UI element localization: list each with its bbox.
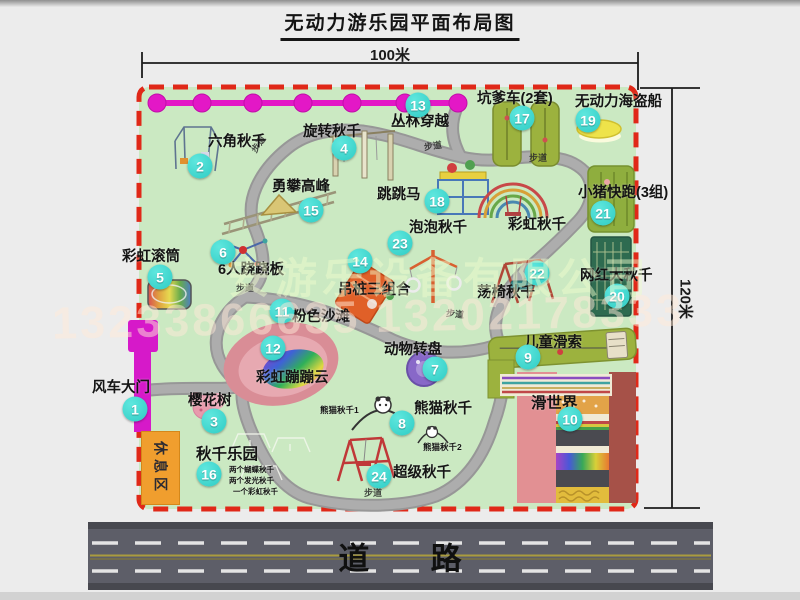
marker-bubble-swing: 23 <box>388 231 413 256</box>
rest-area-zone: 休息区 <box>141 431 180 505</box>
width-dimension-label: 100米 <box>370 44 410 65</box>
marker-kids-zipline: 9 <box>516 345 541 370</box>
marker-six-seesaw: 6 <box>211 240 236 265</box>
label-swing-paradise: 秋千乐园 <box>196 447 258 463</box>
walkway-tag: 步道 <box>364 489 382 498</box>
marker-animal-carousel: 7 <box>423 357 448 382</box>
label-jumping-horse: 跳跳马 <box>377 188 421 203</box>
marker-peak-climbing: 15 <box>299 198 324 223</box>
marker-pink-beach: 11 <box>270 299 295 324</box>
label-rainbow-roller: 彩虹滚筒 <box>122 250 180 265</box>
label-peak-climbing: 勇攀高峰 <box>272 180 330 195</box>
walkway-tag: 步道 <box>236 284 254 293</box>
plan-image: 无动力游乐园平面布局图 100米 120米 休息区 步道 步道 步道 步道 步道… <box>0 0 800 600</box>
label-piggy-run: 小猪快跑(3组) <box>578 186 668 201</box>
marker-hanging-combo: 14 <box>348 249 373 274</box>
label-cherry-tree: 樱花树 <box>188 394 232 409</box>
height-dimension-label: 120米 <box>676 279 697 319</box>
marker-rotating-swing: 4 <box>332 136 357 161</box>
rest-area-label: 休息区 <box>151 441 171 495</box>
label-hexagon-swing: 六角秋千 <box>208 135 266 150</box>
label-panda-swing-2: 熊猫秋千2 <box>423 443 462 452</box>
label-hanging-combo: 吊桩三组合 <box>338 283 411 298</box>
marker-kengdie-car: 17 <box>510 106 535 131</box>
marker-super-swing: 24 <box>367 464 392 489</box>
marker-rainbow-cloud: 12 <box>261 336 286 361</box>
page-title: 无动力游乐园平面布局图 <box>280 8 519 41</box>
label-rainbow-cloud: 彩虹蹦蹦云 <box>256 371 329 386</box>
marker-swing-chair: 22 <box>525 261 550 286</box>
marker-swing-paradise: 16 <box>197 462 222 487</box>
label-super-swing: 超级秋千 <box>393 466 451 481</box>
label-swing-chair: 荡椅秋千 <box>477 286 535 301</box>
label-windmill-gate: 风车大门 <box>92 381 150 396</box>
marker-big-swing: 20 <box>605 284 630 309</box>
marker-cherry-tree: 3 <box>202 409 227 434</box>
marker-panda-swing: 8 <box>390 411 415 436</box>
walkway-tag: 步道 <box>529 154 547 163</box>
walkway-tag: 步道 <box>446 309 465 320</box>
label-panda-swing-1: 熊猫秋千1 <box>320 406 359 415</box>
marker-jungle-traverse: 13 <box>406 93 431 118</box>
label-six-seesaw: 6人跷跷板 <box>218 263 284 278</box>
marker-jumping-horse: 18 <box>425 189 450 214</box>
swing-paradise-note-2: 两个发光秋千 <box>229 477 274 485</box>
swing-paradise-note-1: 两个蝴蝶秋千 <box>229 466 274 474</box>
label-big-swing: 网红大秋千 <box>580 269 653 284</box>
label-pink-beach: 粉色沙滩 <box>292 310 350 325</box>
marker-hexagon-swing: 2 <box>188 154 213 179</box>
label-panda-swing: 熊猫秋千 <box>414 402 472 417</box>
label-kengdie-car: 坑爹车(2套) <box>477 92 553 107</box>
label-rainbow-swing: 彩虹秋千 <box>508 218 566 233</box>
marker-rainbow-roller: 5 <box>148 265 173 290</box>
marker-slide-world: 10 <box>558 407 583 432</box>
label-rotating-swing: 旋转秋千 <box>303 125 361 140</box>
swing-paradise-note-3: 一个彩虹秋千 <box>233 488 278 496</box>
label-animal-carousel: 动物转盘 <box>384 343 442 358</box>
label-bubble-swing: 泡泡秋千 <box>409 221 467 236</box>
road-label: 道 路 <box>312 534 488 579</box>
marker-piggy-run: 21 <box>591 201 616 226</box>
marker-pirate-ship: 19 <box>576 108 601 133</box>
marker-windmill-gate: 1 <box>123 397 148 422</box>
